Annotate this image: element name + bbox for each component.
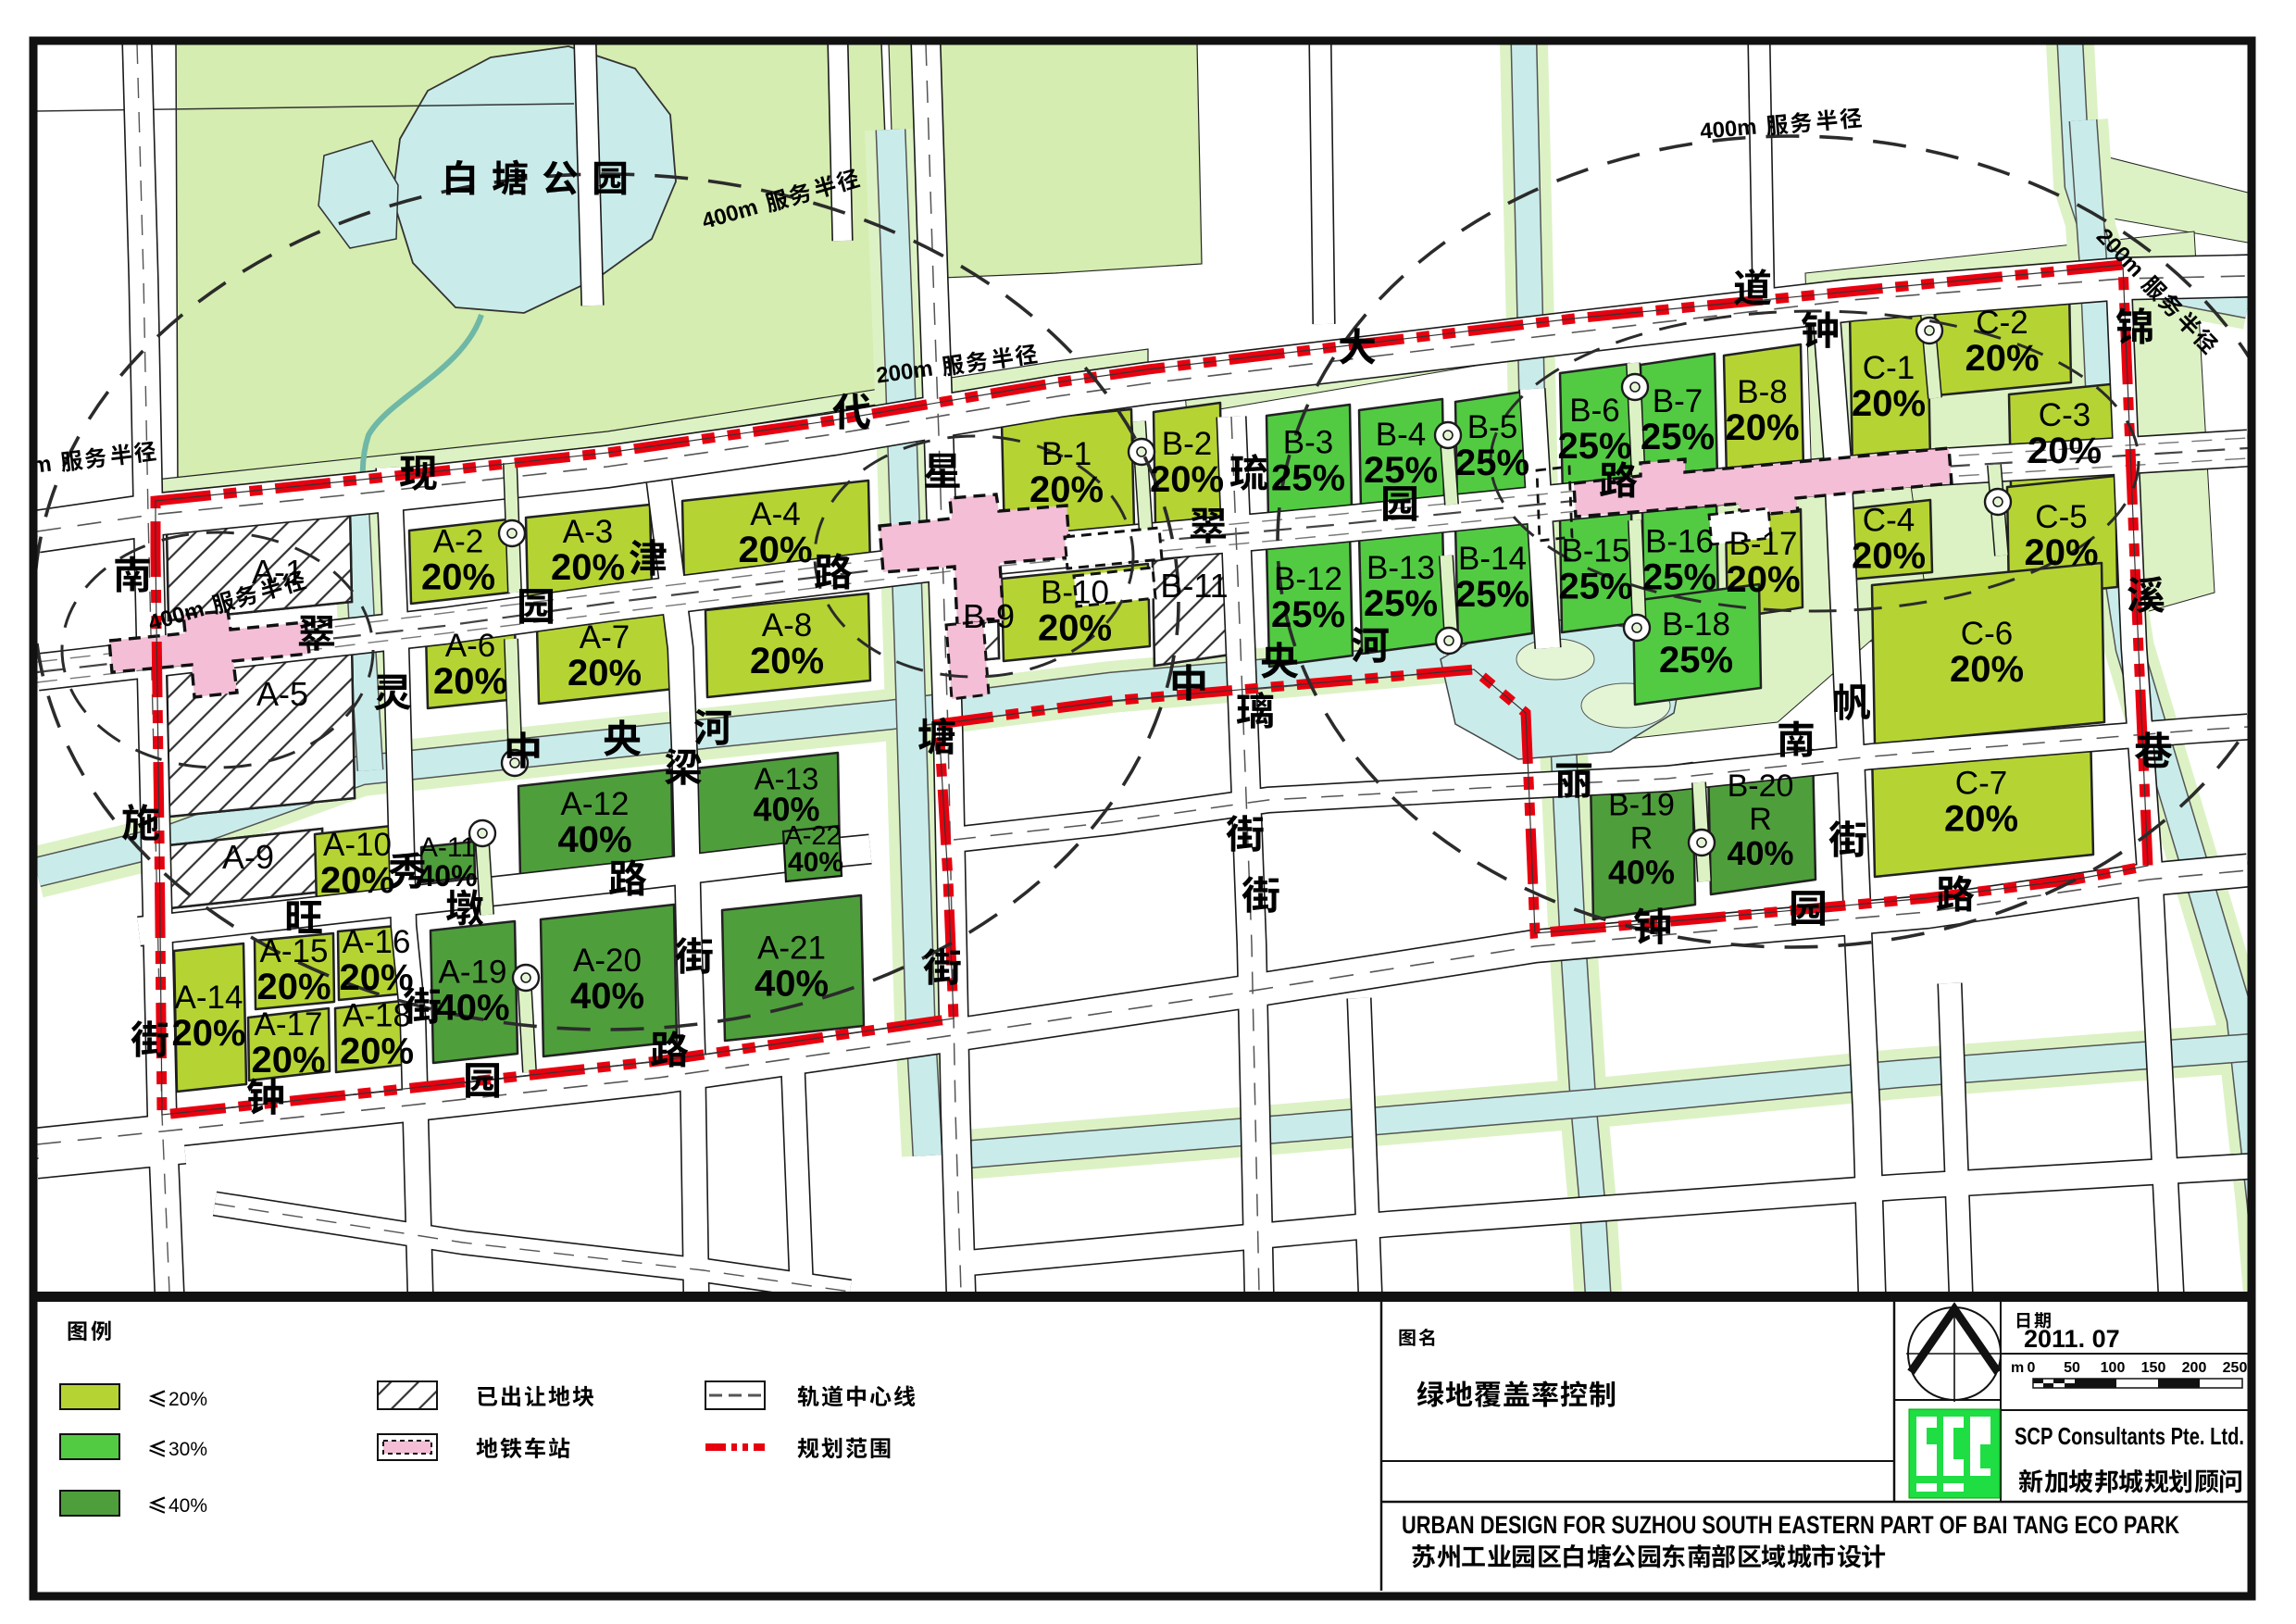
svg-text:20%: 20% [2024, 532, 2098, 573]
svg-text:250: 250 [2223, 1360, 2248, 1376]
svg-text:B-3: B-3 [1283, 425, 1333, 461]
svg-text:100: 100 [2101, 1360, 2126, 1376]
svg-text:B-1: B-1 [1042, 436, 1092, 472]
svg-text:A-2: A-2 [433, 524, 483, 560]
svg-text:40%: 40% [435, 988, 509, 1029]
svg-text:B-4: B-4 [1376, 417, 1426, 453]
svg-text:25%: 25% [1558, 567, 1632, 607]
svg-text:20%: 20% [1852, 383, 1926, 424]
svg-text:25%: 25% [1364, 583, 1438, 624]
svg-text:B-17: B-17 [1729, 526, 1798, 562]
svg-text:20%: 20% [738, 530, 812, 570]
svg-text:B-16: B-16 [1645, 524, 1714, 560]
svg-text:25%: 25% [1455, 443, 1529, 483]
svg-text:A-16: A-16 [343, 924, 411, 960]
svg-text:20%: 20% [171, 1013, 245, 1054]
svg-text:25%: 25% [1641, 417, 1715, 457]
svg-text:C-3: C-3 [2039, 397, 2090, 433]
svg-text:20%: 20% [1944, 799, 2018, 840]
svg-text:C-2: C-2 [1976, 305, 2028, 341]
svg-text:B-14: B-14 [1458, 541, 1527, 577]
svg-text:A-12: A-12 [561, 786, 630, 822]
svg-text:20%: 20% [1852, 536, 1926, 577]
svg-text:20%: 20% [2028, 431, 2102, 471]
svg-text:40%: 40% [418, 859, 477, 893]
svg-text:0: 0 [2028, 1360, 2036, 1376]
svg-text:B-12: B-12 [1274, 561, 1342, 597]
svg-text:C-5: C-5 [2035, 499, 2087, 535]
svg-text:B-11: B-11 [1160, 567, 1228, 605]
svg-text:B-18: B-18 [1662, 606, 1730, 643]
svg-text:B-20: B-20 [1728, 768, 1794, 804]
svg-text:B-10: B-10 [1041, 575, 1109, 611]
svg-text:C-1: C-1 [1863, 350, 1915, 386]
svg-text:A-6: A-6 [445, 628, 495, 664]
svg-text:B-15: B-15 [1562, 533, 1630, 569]
svg-text:B-8: B-8 [1737, 374, 1787, 410]
svg-text:20%: 20% [168, 1389, 207, 1410]
svg-text:25%: 25% [1659, 640, 1733, 681]
svg-text:40%: 40% [755, 964, 829, 1005]
svg-text:20%: 20% [750, 641, 824, 681]
svg-text:A-9: A-9 [222, 838, 274, 876]
svg-text:20%: 20% [1725, 407, 1799, 448]
svg-text:A-15: A-15 [260, 933, 329, 969]
svg-text:20%: 20% [340, 1031, 414, 1072]
svg-text:B-13: B-13 [1366, 550, 1435, 586]
svg-text:20%: 20% [256, 967, 331, 1007]
svg-text:400m: 400m [1699, 115, 1758, 144]
svg-text:20%: 20% [551, 547, 625, 588]
svg-text:B-6: B-6 [1569, 393, 1619, 429]
svg-text:A-3: A-3 [563, 514, 613, 550]
svg-text:m: m [2011, 1360, 2024, 1376]
svg-text:URBAN DESIGN FOR SUZHOU SOUTH: URBAN DESIGN FOR SUZHOU SOUTH EASTERN PA… [1402, 1511, 2179, 1539]
svg-text:30%: 30% [168, 1439, 207, 1460]
svg-text:A-19: A-19 [439, 955, 507, 991]
svg-text:40%: 40% [168, 1495, 207, 1517]
svg-text:25%: 25% [1642, 557, 1716, 598]
svg-text:25%: 25% [1271, 594, 1345, 635]
svg-text:A-7: A-7 [580, 619, 630, 656]
svg-text:150: 150 [2141, 1360, 2166, 1376]
svg-text:20%: 20% [339, 957, 413, 998]
svg-text:40%: 40% [570, 976, 644, 1017]
svg-text:SCP Consultants Pte. Ltd.: SCP Consultants Pte. Ltd. [2015, 1422, 2244, 1450]
svg-text:B-2: B-2 [1162, 426, 1212, 462]
svg-text:C-7: C-7 [1955, 766, 2007, 802]
svg-text:C-4: C-4 [1863, 503, 1915, 539]
svg-text:25%: 25% [1455, 574, 1529, 615]
svg-text:A-20: A-20 [573, 943, 642, 979]
svg-text:20%: 20% [1038, 608, 1112, 649]
svg-text:25%: 25% [1364, 450, 1438, 491]
svg-text:A-4: A-4 [750, 496, 800, 532]
svg-text:A-18: A-18 [343, 998, 411, 1034]
svg-text:40%: 40% [557, 819, 631, 860]
svg-text:200: 200 [2182, 1360, 2207, 1376]
svg-text:C-6: C-6 [1961, 616, 2013, 652]
svg-text:20%: 20% [1965, 338, 2039, 379]
svg-text:A-17: A-17 [255, 1006, 323, 1043]
svg-text:40%: 40% [788, 847, 843, 878]
svg-text:A-10: A-10 [323, 827, 392, 863]
svg-text:R: R [1749, 802, 1772, 837]
svg-text:20%: 20% [1726, 559, 1800, 600]
svg-text:20%: 20% [433, 661, 507, 702]
svg-text:R: R [1630, 821, 1653, 856]
svg-text:B-7: B-7 [1653, 383, 1703, 419]
svg-text:A-21: A-21 [757, 931, 826, 967]
svg-text:20%: 20% [251, 1040, 325, 1081]
svg-text:20%: 20% [421, 557, 495, 598]
svg-text:20%: 20% [568, 653, 642, 693]
svg-text:B-5: B-5 [1467, 409, 1517, 445]
svg-text:A-5: A-5 [256, 675, 308, 713]
svg-text:A-14: A-14 [175, 980, 243, 1016]
svg-text:50: 50 [2064, 1360, 2080, 1376]
svg-text:20%: 20% [1950, 649, 2024, 690]
svg-text:25%: 25% [1271, 458, 1345, 499]
svg-text:B-19: B-19 [1608, 788, 1675, 823]
svg-text:40%: 40% [1608, 854, 1675, 892]
svg-text:20%: 20% [1029, 469, 1104, 510]
svg-text:40%: 40% [1727, 834, 1793, 872]
svg-text:2011. 07: 2011. 07 [2024, 1325, 2120, 1353]
svg-text:20%: 20% [320, 860, 394, 901]
svg-text:A-8: A-8 [762, 607, 812, 643]
svg-text:20%: 20% [1150, 459, 1224, 500]
svg-text:25%: 25% [1557, 426, 1631, 467]
svg-text:B-9: B-9 [963, 597, 1015, 635]
